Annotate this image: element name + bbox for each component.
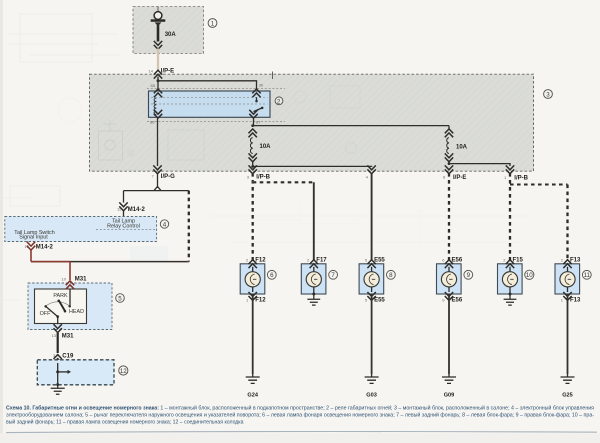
svg-text:OFF: OFF (40, 311, 51, 317)
svg-text:85: 85 (151, 83, 156, 88)
svg-text:Relay Control: Relay Control (107, 224, 140, 230)
svg-text:87: 87 (256, 120, 261, 125)
svg-text:30: 30 (259, 83, 264, 88)
svg-text:14: 14 (149, 69, 154, 74)
svg-text:3: 3 (546, 91, 550, 98)
svg-text:M31: M31 (62, 334, 74, 340)
svg-text:F12: F12 (255, 298, 266, 304)
svg-text:F15: F15 (513, 258, 524, 264)
svg-text:5: 5 (118, 295, 122, 302)
svg-text:E56: E56 (452, 298, 463, 304)
svg-text:F13: F13 (570, 298, 581, 304)
svg-text:7: 7 (331, 272, 335, 279)
svg-text:G09: G09 (444, 392, 455, 398)
svg-text:2: 2 (277, 98, 281, 105)
svg-text:13: 13 (25, 244, 30, 249)
svg-text:10: 10 (62, 276, 67, 281)
svg-text:E56: E56 (452, 258, 463, 264)
svg-text:M31: M31 (75, 277, 87, 283)
svg-text:вый задний фонарь; 11 – правая: вый задний фонарь; 11 – правая лампа осв… (6, 418, 244, 425)
svg-text:Signal Input: Signal Input (19, 235, 48, 241)
svg-text:I/P-E: I/P-E (453, 175, 466, 181)
svg-text:E55: E55 (374, 298, 385, 304)
svg-text:I/P-G: I/P-G (161, 174, 175, 180)
svg-text:13: 13 (52, 333, 57, 338)
svg-text:M14-2: M14-2 (36, 245, 54, 251)
svg-text:4: 4 (163, 221, 167, 228)
svg-text:10: 10 (526, 272, 533, 279)
svg-text:10A: 10A (456, 145, 468, 151)
svg-text:30A: 30A (165, 32, 177, 38)
svg-text:86: 86 (150, 120, 155, 125)
svg-text:F17: F17 (316, 258, 327, 264)
svg-text:9: 9 (467, 272, 471, 279)
svg-text:12: 12 (120, 368, 127, 375)
svg-text:I/P-B: I/P-B (256, 175, 270, 181)
svg-text:C19: C19 (62, 354, 74, 360)
svg-text:I/P-B: I/P-B (514, 175, 528, 181)
svg-text:F13: F13 (570, 258, 581, 264)
svg-text:11: 11 (584, 272, 591, 279)
svg-text:G24: G24 (247, 392, 258, 398)
svg-text:E55: E55 (374, 258, 385, 264)
svg-text:электрооборудованием салона; 5: электрооборудованием салона; 5 – рычаг п… (6, 411, 594, 418)
svg-text:M14-2: M14-2 (128, 207, 146, 213)
svg-text:Схема 10. Габаритные огни и ос: Схема 10. Габаритные огни и освещение но… (6, 404, 594, 411)
svg-text:HEAD: HEAD (69, 309, 84, 315)
svg-text:G03: G03 (366, 392, 377, 398)
svg-text:1: 1 (211, 20, 215, 27)
svg-text:F12: F12 (255, 258, 266, 264)
svg-text:6: 6 (270, 272, 274, 279)
svg-text:10A: 10A (260, 144, 272, 150)
svg-text:PARK: PARK (53, 293, 68, 299)
svg-text:I/P-E: I/P-E (161, 69, 174, 75)
svg-text:G25: G25 (562, 392, 573, 398)
svg-text:8: 8 (389, 272, 393, 279)
